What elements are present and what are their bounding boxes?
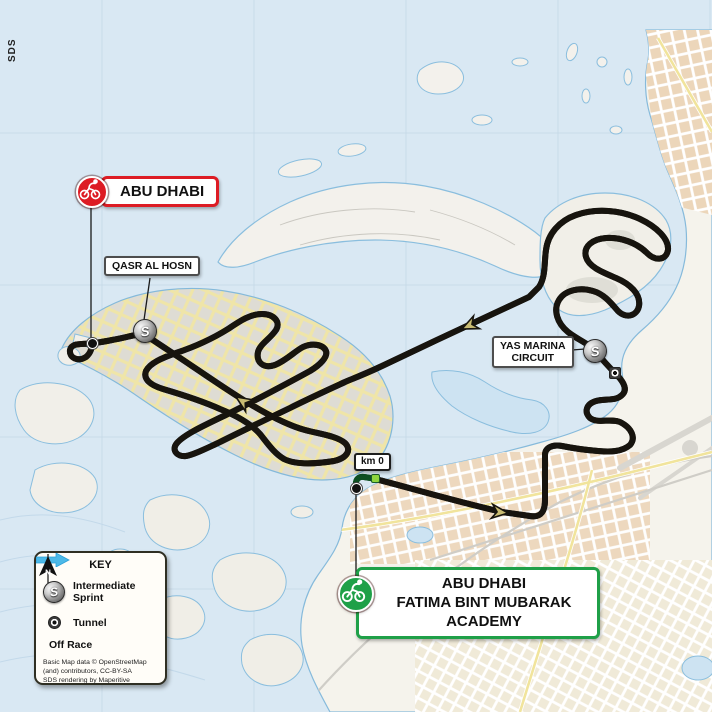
start-label-line2: FATIMA BINT MUBARAK [381, 594, 587, 613]
start-label-line3: ACADEMY [381, 613, 587, 632]
key-item-tunnel: Tunnel [43, 616, 158, 629]
sds-watermark: SDS [7, 38, 18, 62]
key-item-label: Off Race [49, 639, 92, 651]
yas-marina-label: YAS MARINA CIRCUIT [492, 336, 574, 368]
map-key: KEY S Intermediate Sprint Tunnel Off Rac… [34, 551, 167, 685]
tunnel-icon [48, 616, 61, 629]
key-item-label: Tunnel [73, 617, 107, 629]
start-cyclist-icon [338, 576, 374, 612]
map-canvas: SDS S S ABU DHABI QASR AL HOSN YAS MARIN… [0, 0, 712, 712]
km0-marker [371, 474, 380, 483]
finish-label: ABU DHABI [101, 176, 219, 207]
compass-n-glyph: N [45, 568, 51, 577]
km0-label: km 0 [354, 453, 391, 471]
key-item-sprint: S Intermediate Sprint [43, 580, 158, 604]
key-item-label: Intermediate Sprint [73, 580, 158, 604]
start-label: ABU DHABI FATIMA BINT MUBARAK ACADEMY [356, 567, 600, 639]
finish-cyclist-icon [76, 176, 108, 208]
finish-point-dot [87, 338, 98, 349]
start-point-dot [351, 483, 362, 494]
yas-marina-line2: CIRCUIT [500, 352, 566, 364]
tunnel-marker [609, 367, 621, 379]
key-item-offrace: Off Race [43, 639, 158, 651]
compass-row: N Basic Map data © OpenStreetMap (and) c… [43, 658, 158, 686]
start-label-line1: ABU DHABI [381, 575, 587, 594]
map-attribution: Basic Map data © OpenStreetMap (and) con… [43, 658, 147, 686]
qasr-al-hosn-label: QASR AL HOSN [104, 256, 200, 276]
yas-marina-line1: YAS MARINA [500, 340, 566, 352]
sprint-icon: S [42, 580, 67, 605]
